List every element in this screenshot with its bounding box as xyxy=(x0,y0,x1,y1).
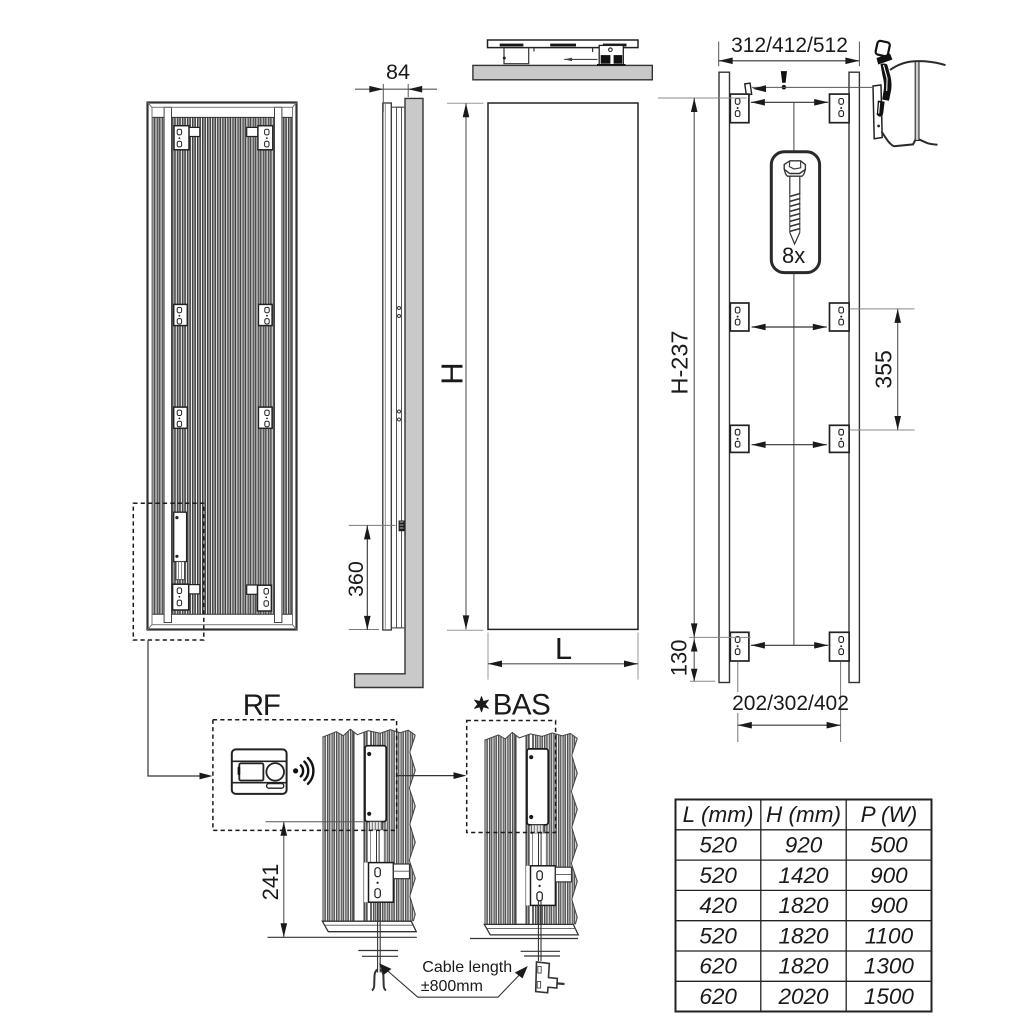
svg-text:L (mm): L (mm) xyxy=(683,802,754,827)
svg-text:RF: RF xyxy=(243,689,280,722)
svg-text:620: 620 xyxy=(699,954,737,979)
svg-text:84: 84 xyxy=(386,60,410,84)
svg-text:420: 420 xyxy=(699,893,737,918)
svg-text:P (W): P (W) xyxy=(861,802,918,827)
svg-text:202/302/402: 202/302/402 xyxy=(732,692,849,715)
svg-text:H: H xyxy=(435,362,470,384)
svg-text:900: 900 xyxy=(870,863,908,888)
svg-text:1820: 1820 xyxy=(778,923,829,948)
svg-text:900: 900 xyxy=(870,893,908,918)
svg-text:312/412/512: 312/412/512 xyxy=(731,34,848,57)
svg-text:520: 520 xyxy=(699,863,737,888)
svg-text:520: 520 xyxy=(699,833,737,858)
svg-text:500: 500 xyxy=(870,833,908,858)
svg-text:360: 360 xyxy=(344,561,368,597)
svg-text:8x: 8x xyxy=(782,243,805,268)
svg-text:BAS: BAS xyxy=(493,689,551,722)
svg-text:920: 920 xyxy=(785,833,823,858)
svg-text:355: 355 xyxy=(871,350,897,388)
svg-text:620: 620 xyxy=(699,984,737,1009)
svg-text:1500: 1500 xyxy=(864,984,915,1009)
svg-text:1300: 1300 xyxy=(864,954,915,979)
svg-text:Cable length: Cable length xyxy=(422,959,512,976)
svg-text:1820: 1820 xyxy=(778,954,829,979)
svg-text:L: L xyxy=(555,631,572,666)
svg-text:1420: 1420 xyxy=(778,863,829,888)
svg-text:2020: 2020 xyxy=(777,984,829,1009)
svg-text:520: 520 xyxy=(699,923,737,948)
svg-text:130: 130 xyxy=(667,640,692,677)
svg-text:241: 241 xyxy=(258,864,283,901)
svg-text:1100: 1100 xyxy=(865,923,914,948)
svg-text:±800mm: ±800mm xyxy=(421,978,483,995)
svg-text:1820: 1820 xyxy=(778,893,829,918)
svg-text:H (mm): H (mm) xyxy=(766,802,841,827)
svg-text:H-237: H-237 xyxy=(667,330,693,394)
